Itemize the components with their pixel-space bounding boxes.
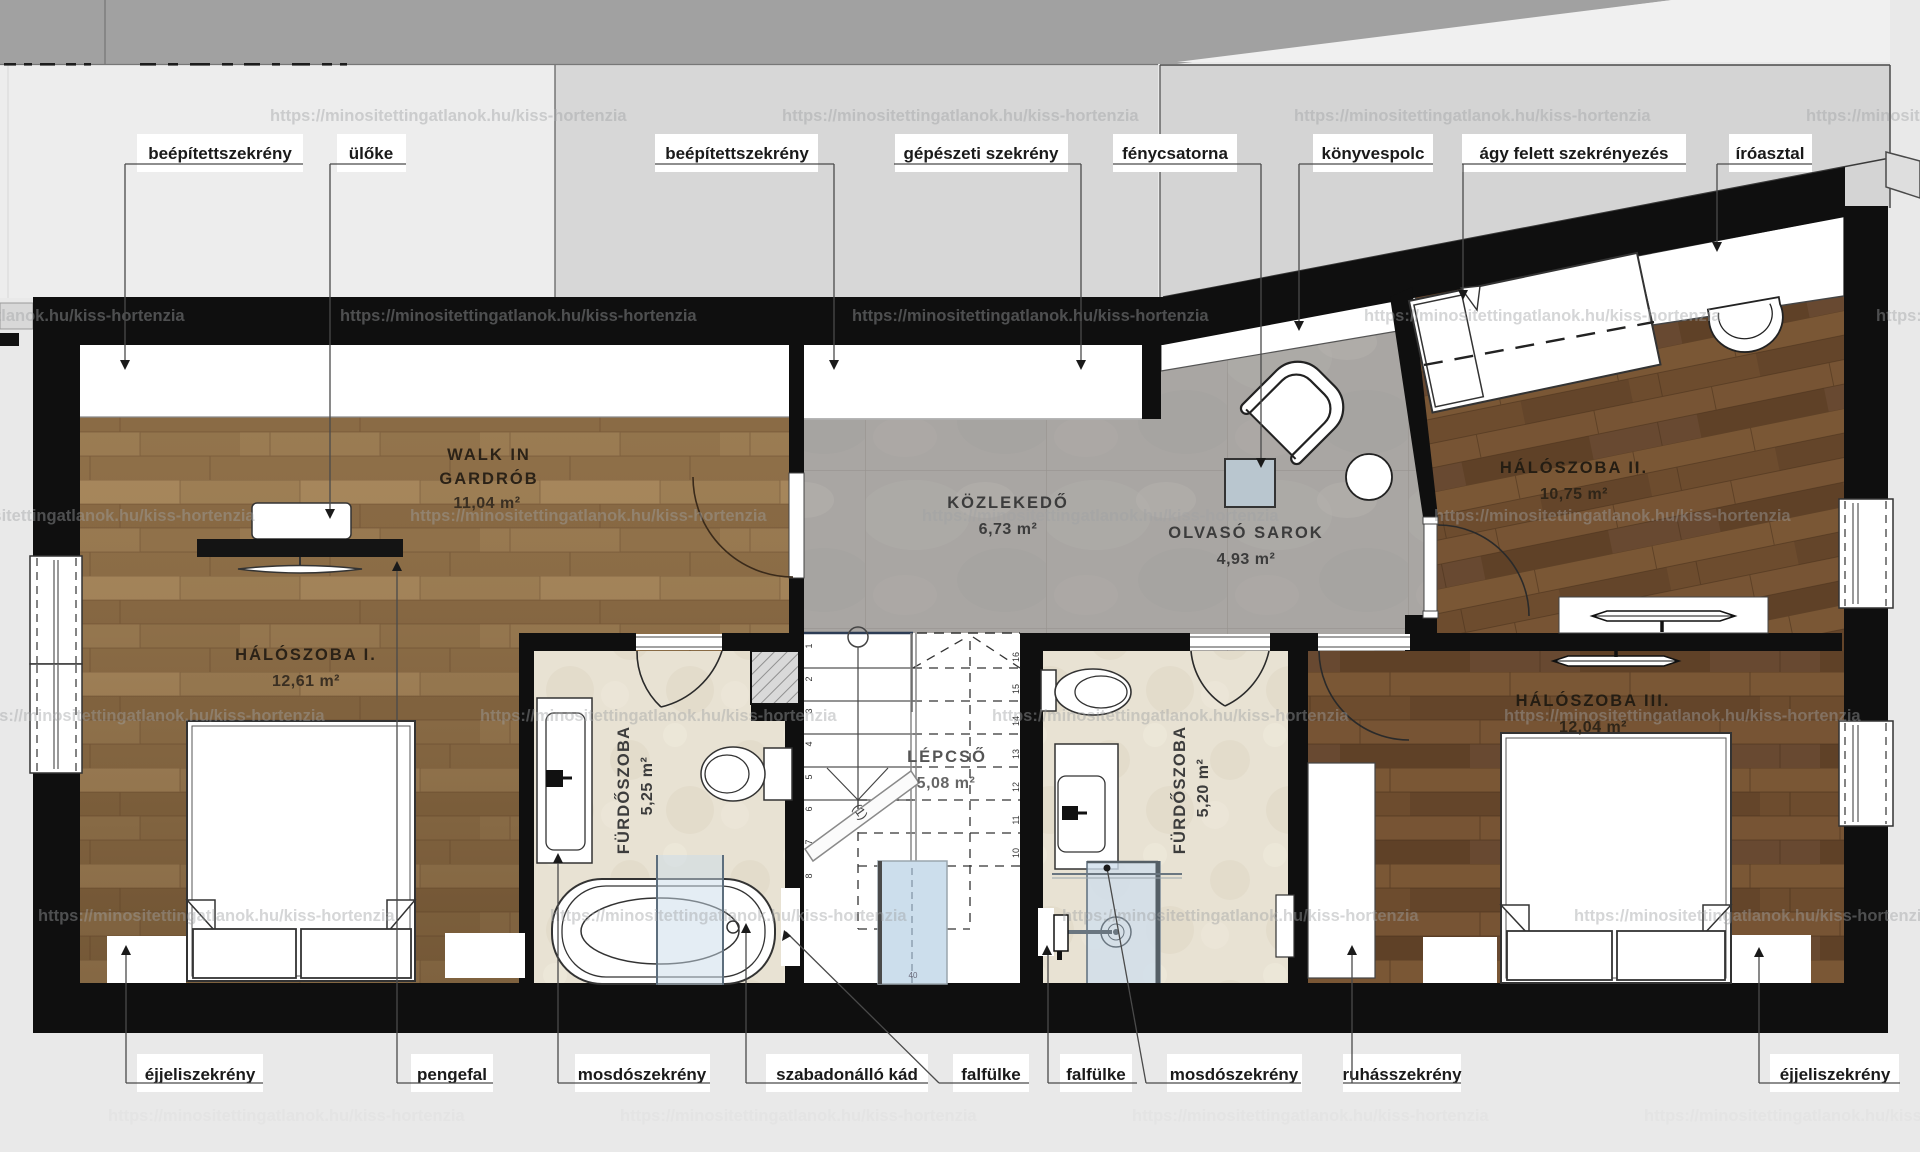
svg-text:6,73 m²: 6,73 m²	[979, 521, 1038, 538]
svg-text:https://minositettingatlanok.h: https://minositettingatlanok.hu/kiss-hor…	[108, 1107, 465, 1125]
svg-text:https://minositettingatlanok.h: https://minositettingatlanok.hu/kiss-hor…	[0, 307, 185, 325]
svg-text:GARDRÓB: GARDRÓB	[439, 469, 538, 488]
svg-text:ülőke: ülőke	[349, 144, 393, 163]
svg-text:5,08 m²: 5,08 m²	[917, 775, 976, 792]
svg-text:gépészeti szekrény: gépészeti szekrény	[904, 144, 1060, 163]
svg-text:éjjeliszekrény: éjjeliszekrény	[145, 1065, 256, 1084]
svg-text:5,20 m²: 5,20 m²	[1195, 759, 1212, 818]
svg-text:éjjeliszekrény: éjjeliszekrény	[1780, 1065, 1891, 1084]
svg-text:11,04 m²: 11,04 m²	[453, 495, 520, 512]
svg-text:mosdószekrény: mosdószekrény	[578, 1065, 707, 1084]
svg-text:FÜRDŐSZOBA: FÜRDŐSZOBA	[614, 726, 633, 854]
svg-text:10: 10	[1011, 848, 1021, 858]
svg-text:https://minositettingatlanok.h: https://minositettingatlanok.hu/kiss-hor…	[0, 507, 255, 525]
svg-text:11: 11	[1011, 815, 1021, 824]
svg-text:https://minositettingatlanok.h: https://minositettingatlanok.hu/kiss-hor…	[782, 107, 1139, 125]
svg-text:https://minositettingatlanok.h: https://minositettingatlanok.hu/kiss-hor…	[852, 307, 1209, 325]
svg-text:1: 1	[804, 643, 814, 648]
svg-text:HÁLÓSZOBA III.: HÁLÓSZOBA III.	[1516, 691, 1671, 710]
svg-text:4,93 m²: 4,93 m²	[1217, 551, 1276, 568]
svg-text:íróasztal: íróasztal	[1736, 144, 1805, 163]
svg-text:https://minositettingatlanok.h: https://minositettingatlanok.hu/kiss-hor…	[1806, 107, 1920, 125]
svg-text:7: 7	[804, 839, 814, 844]
svg-text:5: 5	[804, 774, 814, 779]
svg-text:10,75 m²: 10,75 m²	[1540, 486, 1608, 503]
svg-text:https://minositettingatlanok.h: https://minositettingatlanok.hu/kiss-hor…	[1574, 907, 1920, 925]
svg-text:HÁLÓSZOBA I.: HÁLÓSZOBA I.	[235, 645, 377, 664]
svg-text:16: 16	[1011, 652, 1021, 662]
svg-text:https://minositettingatlanok.h: https://minositettingatlanok.hu/kiss-hor…	[1434, 507, 1791, 525]
svg-text:12,61 m²: 12,61 m²	[272, 673, 340, 690]
svg-text:LÉPCSŐ: LÉPCSŐ	[907, 747, 987, 766]
svg-text:https://minositettingatlanok.h: https://minositettingatlanok.hu/kiss-hor…	[340, 307, 697, 325]
svg-text:beépítettszekrény: beépítettszekrény	[665, 144, 809, 163]
svg-text:15: 15	[1011, 684, 1021, 694]
svg-text:https://minositettingatlanok.h: https://minositettingatlanok.hu/kiss-hor…	[1876, 307, 1920, 325]
svg-text:könyvespolc: könyvespolc	[1322, 144, 1425, 163]
svg-text:https://minositettingatlanok.h: https://minositettingatlanok.hu/kiss-hor…	[0, 707, 325, 725]
svg-text:8: 8	[804, 873, 814, 878]
svg-text:12,04 m²: 12,04 m²	[1559, 719, 1627, 736]
svg-text:OLVASÓ SAROK: OLVASÓ SAROK	[1168, 523, 1323, 542]
svg-text:KÖZLEKEDŐ: KÖZLEKEDŐ	[947, 493, 1069, 512]
svg-text:2: 2	[804, 676, 814, 681]
svg-text:https://minositettingatlanok.h: https://minositettingatlanok.hu/kiss-hor…	[38, 907, 395, 925]
svg-text:https://minositettingatlanok.h: https://minositettingatlanok.hu/kiss-hor…	[480, 707, 837, 725]
svg-text:https://minositettingatlanok.h: https://minositettingatlanok.hu/kiss-hor…	[1132, 1107, 1489, 1125]
svg-text:ágy felett szekrényezés: ágy felett szekrényezés	[1480, 144, 1669, 163]
svg-text:https://minositettingatlanok.h: https://minositettingatlanok.hu/kiss-hor…	[620, 1107, 977, 1125]
svg-text:6: 6	[804, 806, 814, 811]
svg-text:12: 12	[1011, 782, 1021, 792]
svg-text:falfülke: falfülke	[1066, 1065, 1126, 1084]
svg-text:40: 40	[909, 971, 918, 980]
svg-text:mosdószekrény: mosdószekrény	[1170, 1065, 1299, 1084]
svg-text:4: 4	[804, 741, 814, 746]
svg-text:szabadonálló kád: szabadonálló kád	[776, 1065, 918, 1084]
svg-text:beépítettszekrény: beépítettszekrény	[148, 144, 292, 163]
svg-text:FÜRDŐSZOBA: FÜRDŐSZOBA	[1170, 726, 1189, 854]
svg-text:falfülke: falfülke	[961, 1065, 1021, 1084]
svg-text:https://minositettingatlanok.h: https://minositettingatlanok.hu/kiss-hor…	[1364, 307, 1721, 325]
svg-text:5,25 m²: 5,25 m²	[639, 757, 656, 816]
svg-text:13: 13	[1011, 749, 1021, 759]
svg-text:https://minositettingatlanok.h: https://minositettingatlanok.hu/kiss-hor…	[1644, 1107, 1920, 1125]
svg-text:HÁLÓSZOBA II.: HÁLÓSZOBA II.	[1500, 458, 1648, 477]
svg-text:WALK IN: WALK IN	[447, 446, 531, 464]
svg-text:pengefal: pengefal	[417, 1065, 487, 1084]
svg-text:https://minositettingatlanok.h: https://minositettingatlanok.hu/kiss-hor…	[270, 107, 627, 125]
svg-text:https://minositettingatlanok.h: https://minositettingatlanok.hu/kiss-hor…	[992, 707, 1349, 725]
svg-text:fénycsatorna: fénycsatorna	[1122, 144, 1228, 163]
svg-text:https://minositettingatlanok.h: https://minositettingatlanok.hu/kiss-hor…	[550, 907, 907, 925]
svg-text:ruhásszekrény: ruhásszekrény	[1342, 1065, 1462, 1084]
svg-text:https://minositettingatlanok.h: https://minositettingatlanok.hu/kiss-hor…	[1294, 107, 1651, 125]
